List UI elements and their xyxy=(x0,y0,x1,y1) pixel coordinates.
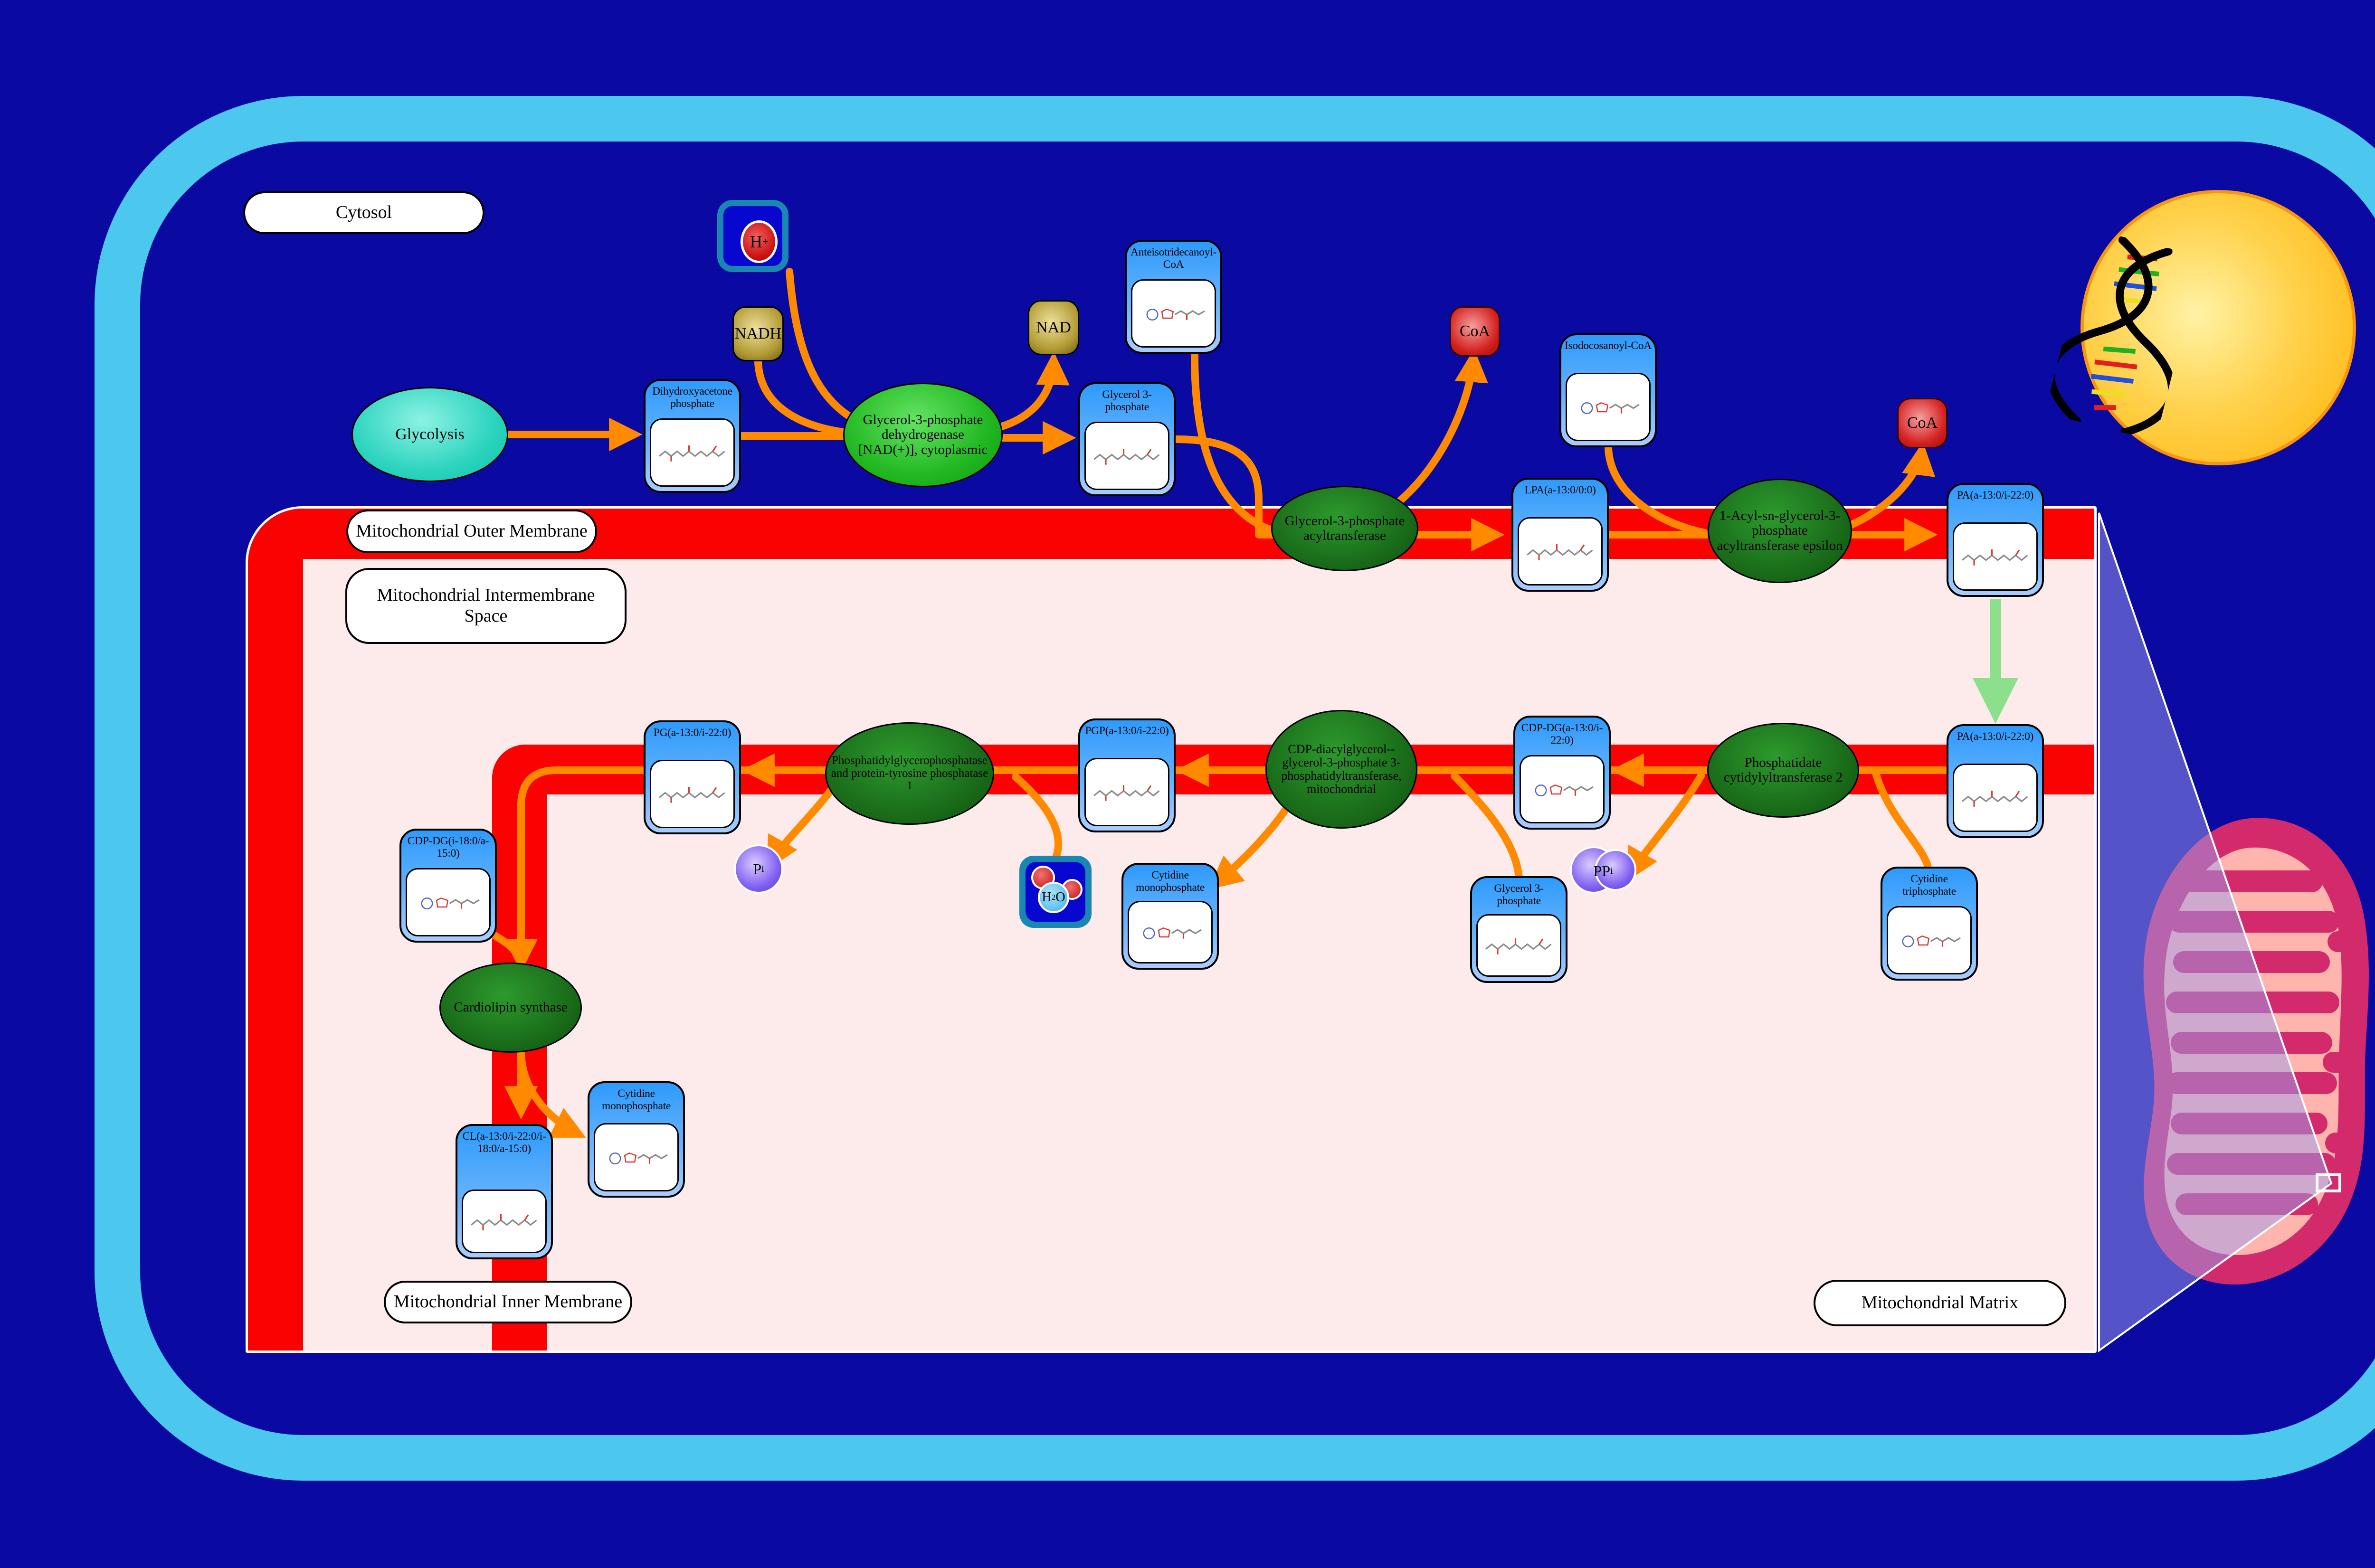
molecule-structure-icon xyxy=(1084,422,1169,490)
molecule-structure-icon xyxy=(1128,901,1213,963)
label-cytosol: Cytosol xyxy=(243,191,484,234)
cofactor-ppi[interactable]: PPi xyxy=(1570,844,1636,897)
metabolite-ctp[interactable]: Cytidine triphosphate xyxy=(1881,867,1978,981)
cofactor-coa-2[interactable]: CoA xyxy=(1897,398,1947,448)
molecule-structure-icon xyxy=(650,418,735,487)
metabolite-cdp-dg-a[interactable]: CDP-DG(a-13:0/i-22:0) xyxy=(1513,716,1611,830)
molecule-structure-icon xyxy=(462,1190,547,1253)
label-intermembrane-space: Mitochondrial Intermembrane Space xyxy=(345,568,627,644)
molecule-structure-icon xyxy=(1084,758,1169,826)
cofactor-coa-1[interactable]: CoA xyxy=(1450,306,1500,357)
metabolite-cdp-dg-i[interactable]: CDP-DG(i-18:0/a-15:0) xyxy=(399,829,497,943)
proton-icon: H+ xyxy=(741,220,778,263)
label-matrix: Mitochondrial Matrix xyxy=(1814,1280,2066,1326)
label-outer-membrane: Mitochondrial Outer Membrane xyxy=(346,510,597,553)
metabolite-pgp[interactable]: PGP(a-13:0/i-22:0) xyxy=(1078,718,1176,832)
metabolite-pa-outer[interactable]: PA(a-13:0/i-22:0) xyxy=(1947,483,2044,597)
metabolite-pa-inner[interactable]: PA(a-13:0/i-22:0) xyxy=(1947,724,2044,838)
metabolite-lpa[interactable]: LPA(a-13:0/0:0) xyxy=(1511,478,1609,592)
enzyme-cls[interactable]: Cardiolipin synthase xyxy=(439,963,582,1053)
cofactor-nadh[interactable]: NADH xyxy=(732,306,784,361)
water-molecule-icon: H2O xyxy=(1026,862,1085,922)
metabolite-anteisotridecanoyl-coa[interactable]: Anteisotridecanoyl-CoA xyxy=(1125,240,1222,354)
molecule-structure-icon xyxy=(1131,279,1216,348)
molecule-structure-icon xyxy=(1476,914,1561,977)
enzyme-ptpmt1[interactable]: Phosphatidylglycerophosphatase and prote… xyxy=(825,722,994,825)
metabolite-dhap[interactable]: Dihydroxyacetone phosphate xyxy=(644,379,741,493)
mitochondrion-illustration xyxy=(2123,810,2375,1294)
metabolite-g3p[interactable]: Glycerol 3-phosphate xyxy=(1078,382,1176,496)
node-glycolysis[interactable]: Glycolysis xyxy=(351,387,508,482)
pathway-diagram: Cytosol Mitochondrial Outer Membrane Mit… xyxy=(0,0,2375,1568)
outer-membrane-band-left xyxy=(248,509,303,1351)
cofactor-h2o[interactable]: H2O xyxy=(1019,856,1092,928)
metabolite-cmp-2[interactable]: Cytidine monophosphate xyxy=(588,1081,685,1198)
cofactor-nad[interactable]: NAD xyxy=(1028,300,1079,355)
enzyme-gpd1[interactable]: Glycerol-3-phosphate dehydrogenase [NAD(… xyxy=(843,383,1003,487)
enzyme-gpat[interactable]: Glycerol-3-phosphate acyltransferase xyxy=(1271,486,1418,571)
molecule-structure-icon xyxy=(1887,906,1972,974)
enzyme-pgs1[interactable]: CDP-diacylglycerol--glycerol-3-phosphate… xyxy=(1265,710,1417,829)
metabolite-g3p-matrix[interactable]: Glycerol 3-phosphate xyxy=(1470,876,1567,983)
enzyme-cds2[interactable]: Phosphatidate cytidylyltransferase 2 xyxy=(1707,723,1859,818)
molecule-structure-icon xyxy=(1520,755,1605,823)
molecule-structure-icon xyxy=(650,760,735,828)
metabolite-pg[interactable]: PG(a-13:0/i-22:0) xyxy=(644,720,741,834)
enzyme-agpat-epsilon[interactable]: 1-Acyl-sn-glycerol-3-phosphate acyltrans… xyxy=(1708,479,1852,583)
metabolite-cl[interactable]: CL(a-13:0/i-22:0/i-18:0/a-15:0) xyxy=(456,1124,553,1259)
molecule-structure-icon xyxy=(1518,517,1603,586)
cofactor-pi[interactable]: Pi xyxy=(734,844,783,894)
molecule-structure-icon xyxy=(1953,522,2038,591)
molecule-structure-icon xyxy=(1953,764,2038,832)
cofactor-h-plus[interactable]: H+ xyxy=(717,200,788,272)
label-inner-membrane: Mitochondrial Inner Membrane xyxy=(384,1281,632,1323)
molecule-structure-icon xyxy=(406,868,491,936)
metabolite-cmp-1[interactable]: Cytidine monophosphate xyxy=(1121,863,1219,970)
molecule-structure-icon xyxy=(594,1123,679,1191)
molecule-structure-icon xyxy=(1566,373,1651,441)
metabolite-isodocosanoyl-coa[interactable]: Isodocosanoyl-CoA xyxy=(1559,333,1657,447)
